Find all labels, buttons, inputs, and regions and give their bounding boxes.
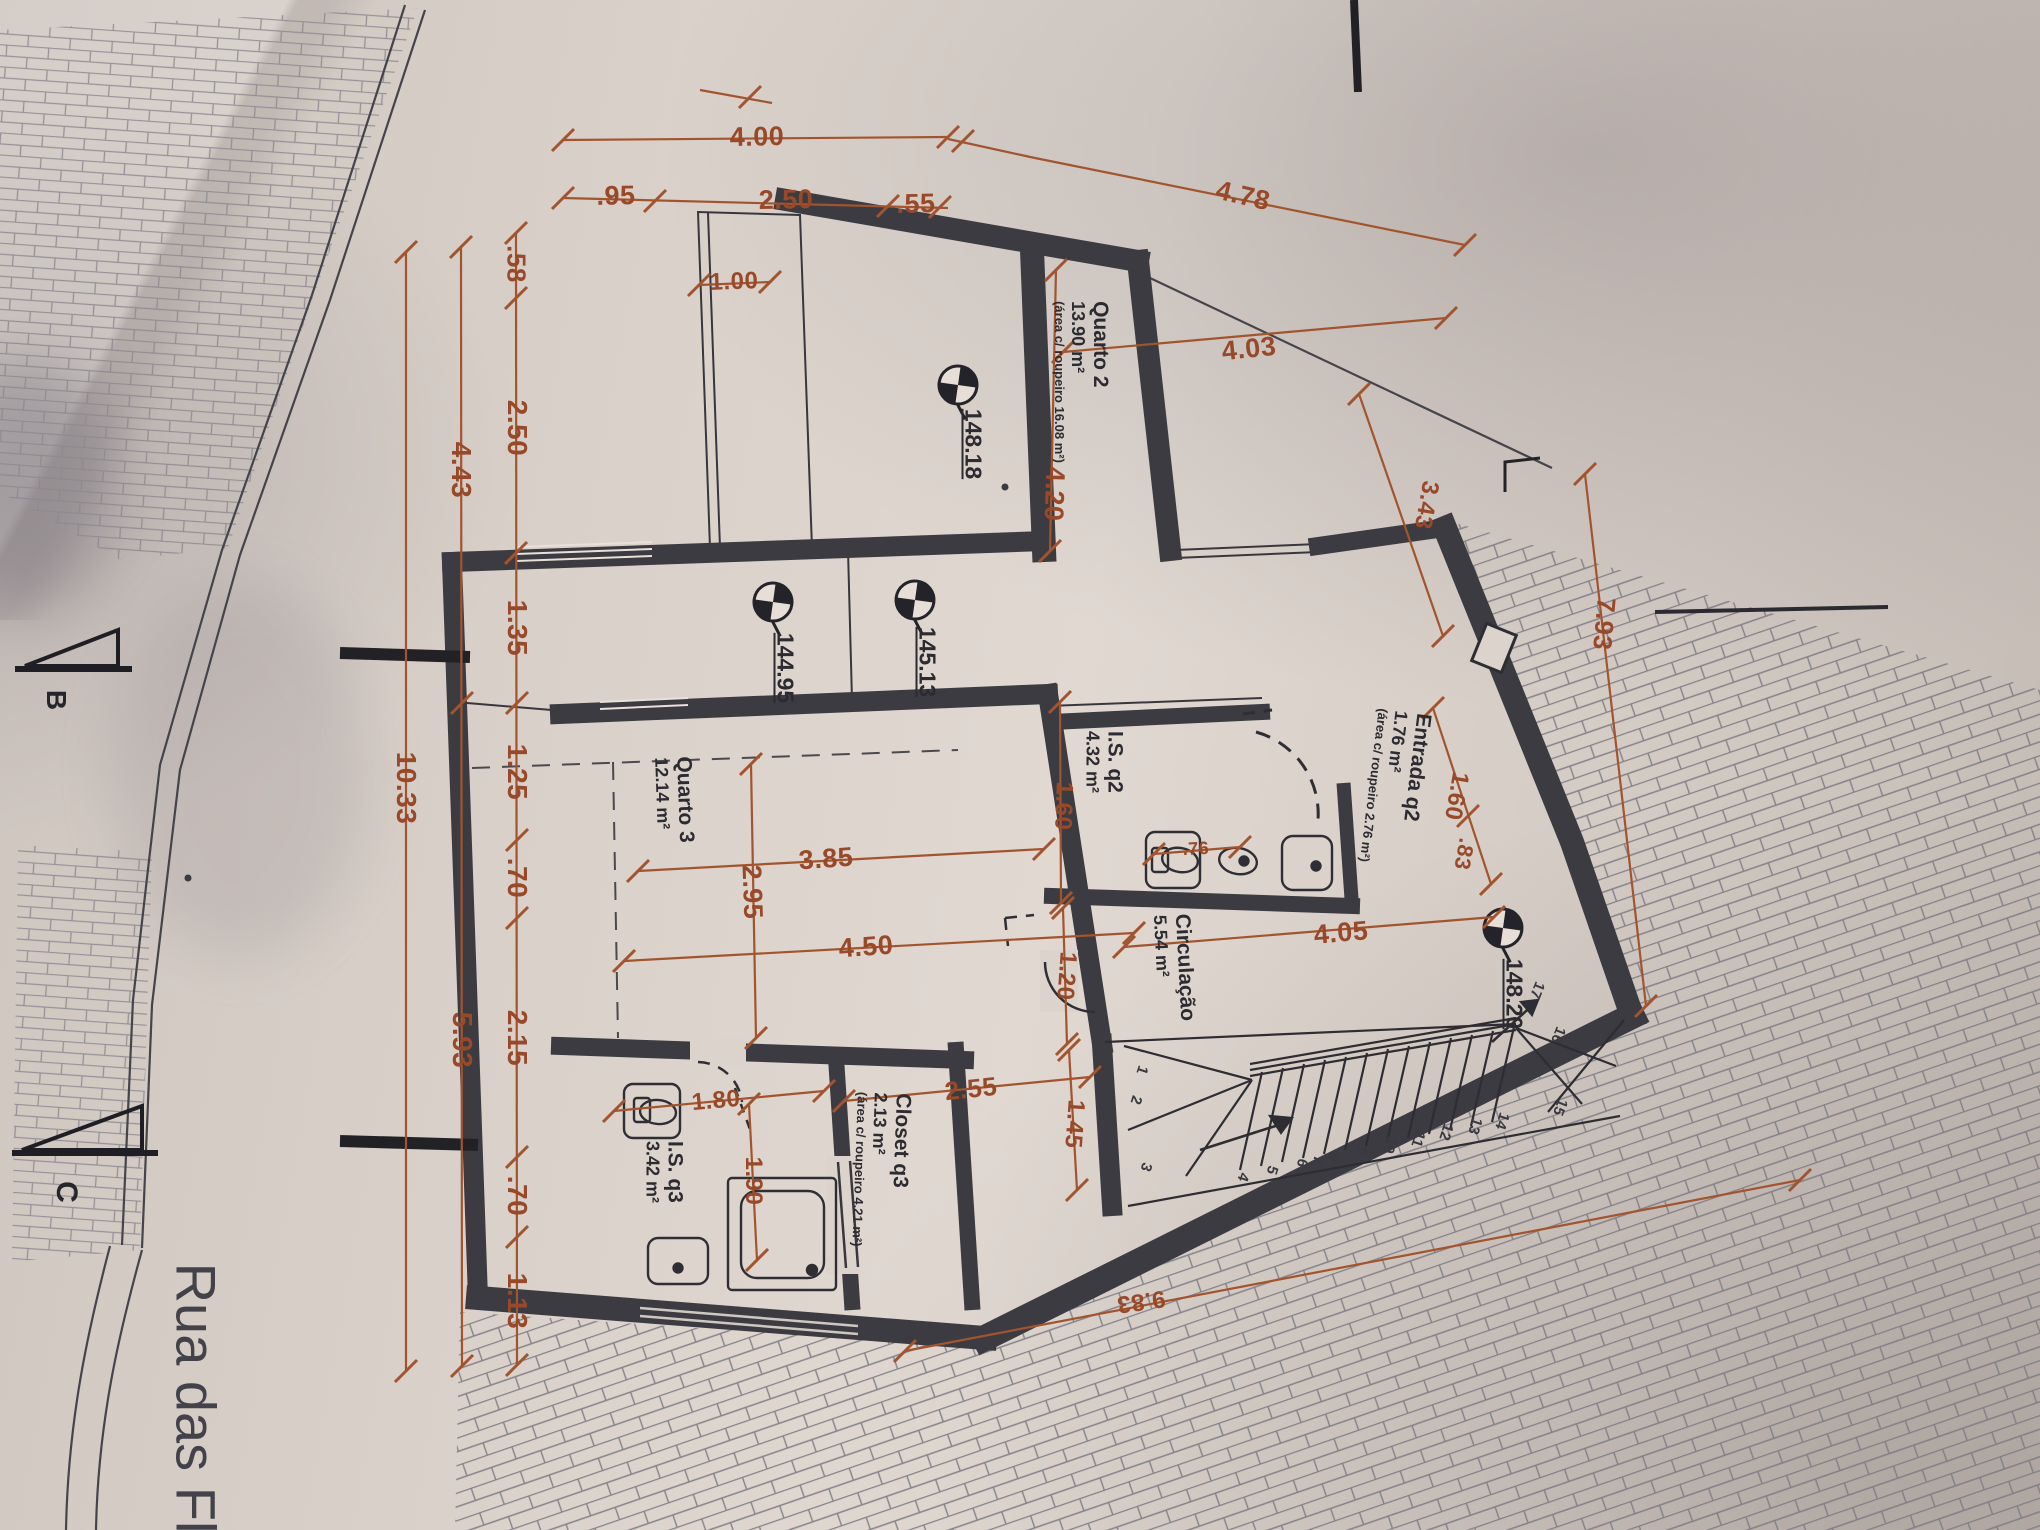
room-name: Quarto 3 — [671, 756, 698, 843]
dim-0-70-b: .70 — [501, 1176, 533, 1216]
dim-4-05: 4.05 — [1312, 915, 1369, 951]
level-marker-icon — [750, 581, 795, 638]
level-148-18: 148.18 — [960, 409, 987, 479]
dashed-lines — [472, 750, 958, 1038]
dim-1-80: 1.80 — [691, 1085, 742, 1117]
level-markers — [750, 364, 1525, 964]
room-label-isq2: I.S. q2 4.32 m² — [1081, 731, 1126, 793]
level-144-95: 144.95 — [772, 633, 799, 703]
balcony-lines — [455, 212, 1318, 714]
room-area: 12.14 m² — [650, 757, 674, 844]
room-label-isq3: I.S. q3 3.42 m² — [641, 1141, 686, 1203]
dim-1-35: 1.35 — [501, 600, 533, 657]
dim-4-43: 4.43 — [445, 442, 477, 499]
room-area: 13.90 m² — [1067, 301, 1088, 463]
room-label-circulacao: Circulação 5.54 m² — [1149, 913, 1200, 1023]
dim-4-03: 4.03 — [1220, 331, 1278, 368]
dim-3-85: 3.85 — [798, 842, 855, 877]
dim-7-93: 7.93 — [1586, 596, 1621, 651]
dim-2-95: 2.95 — [736, 864, 769, 920]
room-area: 3.42 m² — [641, 1141, 662, 1203]
level-marker-icon — [1480, 907, 1525, 964]
dim-0-70-a: .70 — [501, 858, 533, 898]
room-note: (área c/ roupeiro 16.08 m²) — [1052, 301, 1067, 463]
dim-4-20: 4.20 — [1038, 466, 1071, 522]
dim-1-90: 1.90 — [739, 1157, 767, 1206]
dim-1-00: 1.00 — [709, 267, 759, 297]
dim-1-60-isq2: 1.60 — [1048, 781, 1078, 831]
dim-0-55: .55 — [896, 188, 936, 220]
toilet-isq3-icon — [624, 1084, 680, 1138]
dim-0-58: .58 — [501, 245, 532, 283]
dim-2-55: 2.55 — [943, 1071, 999, 1107]
room-label-quarto3: Quarto 3 12.14 m² — [650, 756, 698, 844]
room-label-quarto2: Quarto 2 13.90 m² (área c/ roupeiro 16.0… — [1052, 301, 1112, 463]
dim-1-45: 1.45 — [1058, 1099, 1089, 1150]
dim-1-13: 1.13 — [501, 1273, 533, 1330]
room-name: I.S. q2 — [1102, 731, 1126, 793]
room-area: 4.32 m² — [1081, 731, 1102, 793]
dim-5-93: 5.93 — [446, 1012, 478, 1069]
sink-isq2-icon — [1282, 836, 1332, 890]
door-swings — [698, 710, 1318, 1135]
room-label-closet: Closet q3 2.13 m² (área c/ roupeiro 4.21… — [849, 1092, 915, 1249]
dim-0-83: .83 — [1448, 836, 1479, 872]
dim-10-33: 10.33 — [390, 752, 422, 825]
level-145-13: 145.13 — [914, 627, 941, 697]
dim-2-50-left: 2.50 — [501, 400, 533, 457]
section-marker-b: B — [40, 690, 72, 710]
dim-2-50-top: 2.50 — [758, 184, 813, 216]
sink-isq3-icon — [648, 1238, 708, 1284]
dim-0-76: .76 — [1182, 838, 1210, 860]
dim-1-25: 1.25 — [501, 744, 533, 801]
room-name: I.S. q3 — [662, 1141, 686, 1203]
room-name: Quarto 2 — [1088, 301, 1112, 463]
plan-linework — [0, 0, 2040, 1530]
dim-1-20: 1.20 — [1050, 951, 1081, 1002]
section-marker-c: C — [49, 1181, 83, 1203]
level-148-20: 148.20 — [1501, 959, 1528, 1029]
dim-4-00: 4.00 — [729, 121, 784, 153]
floorplan-photo: 4.00 .95 2.50 .55 4.78 .58 2.50 1.35 1.2… — [0, 0, 2040, 1530]
section-b-icon — [15, 630, 132, 669]
dim-4-50: 4.50 — [838, 930, 895, 965]
street-name: Rua das Fl — [164, 1263, 229, 1530]
dim-0-95: .95 — [596, 180, 636, 212]
dim-2-15: 2.15 — [501, 1010, 533, 1067]
